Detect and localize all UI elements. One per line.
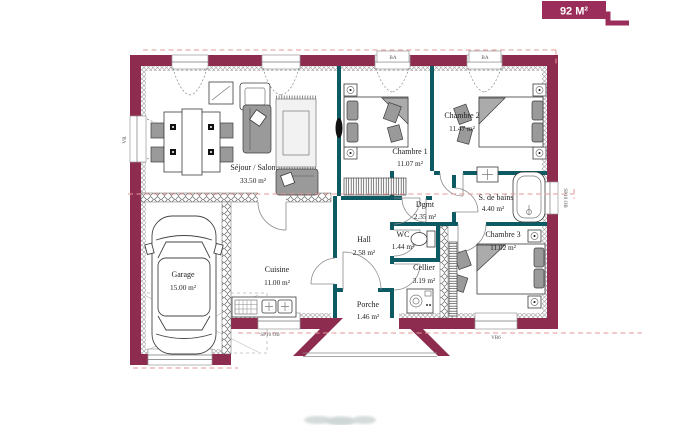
label-porche: Porche <box>357 300 380 309</box>
area-dgmt: 2.35 m² <box>414 212 437 221</box>
toilet-tank <box>427 231 435 247</box>
badge-label: 92 M² <box>560 6 588 18</box>
porch-step <box>303 353 437 357</box>
area-hall: 2.58 m² <box>353 248 376 257</box>
furniture-chambre2 <box>454 84 546 159</box>
tv-unit <box>336 118 343 138</box>
door-chambre2 <box>440 173 463 196</box>
furniture-chambre1 <box>344 84 408 195</box>
wardrobe <box>344 178 406 195</box>
code-window-sdb: SP10 OB <box>562 188 568 208</box>
label-cellier: Cellier <box>413 263 435 272</box>
area-chambre2: 11.47 m² <box>449 124 476 133</box>
label-chambre1: Chambre 1 <box>392 147 427 156</box>
label-garage: Garage <box>171 270 195 279</box>
code-window-cuisine: SP10 OB <box>260 332 280 338</box>
logo-corner-bracket <box>608 12 629 24</box>
furniture-wc <box>411 231 435 247</box>
washing-machine <box>407 289 433 313</box>
area-chambre3: 11.02 m² <box>490 243 517 252</box>
door-entry <box>343 252 381 290</box>
area-sejour: 33.50 m² <box>240 176 267 185</box>
furniture-cellier <box>407 289 433 313</box>
door-sdb <box>454 188 478 212</box>
door-cuisine-hall <box>311 258 335 284</box>
door-cuisine <box>258 202 286 230</box>
code-window-chambre2: BA <box>481 55 488 61</box>
label-chambre3: Chambre 3 <box>485 230 520 239</box>
area-garage: 15.00 m² <box>170 283 197 292</box>
sofa-2 <box>276 169 318 195</box>
furniture-cuisine <box>232 297 296 317</box>
label-hall: Hall <box>357 235 372 244</box>
label-wc: WC <box>397 230 410 239</box>
label-sejour: Séjour / Salon <box>230 163 275 172</box>
code-window-sejour-left: VR <box>122 136 128 144</box>
area-sdb: 4.40 m² <box>482 204 505 213</box>
floor-plan-page: Séjour / Salon 33.50 m² Chambre 1 11.07 … <box>0 0 680 425</box>
label-dgmt: Dgmt <box>416 200 435 209</box>
area-badge: 92 M² <box>542 1 629 23</box>
area-cellier: 3.19 m² <box>413 276 436 285</box>
label-sdb: S. de bains <box>479 193 514 202</box>
floor-plan-svg: Séjour / Salon 33.50 m² Chambre 1 11.07 … <box>0 0 680 425</box>
area-wc: 1.44 m² <box>392 242 415 251</box>
label-cuisine: Cuisine <box>265 265 290 274</box>
area-cuisine: 11.00 m² <box>264 278 291 287</box>
code-window-chambre3: VR6 <box>491 335 501 341</box>
code-window-chambre1: BA <box>389 55 396 61</box>
area-porche: 1.46 m² <box>357 312 380 321</box>
window-sejour-left <box>130 116 146 162</box>
rug <box>276 99 316 167</box>
label-chambre2: Chambre 2 <box>444 111 479 120</box>
area-chambre1: 11.07 m² <box>397 159 424 168</box>
cropped-logo-smudge <box>304 416 376 425</box>
wardrobe <box>449 242 457 316</box>
